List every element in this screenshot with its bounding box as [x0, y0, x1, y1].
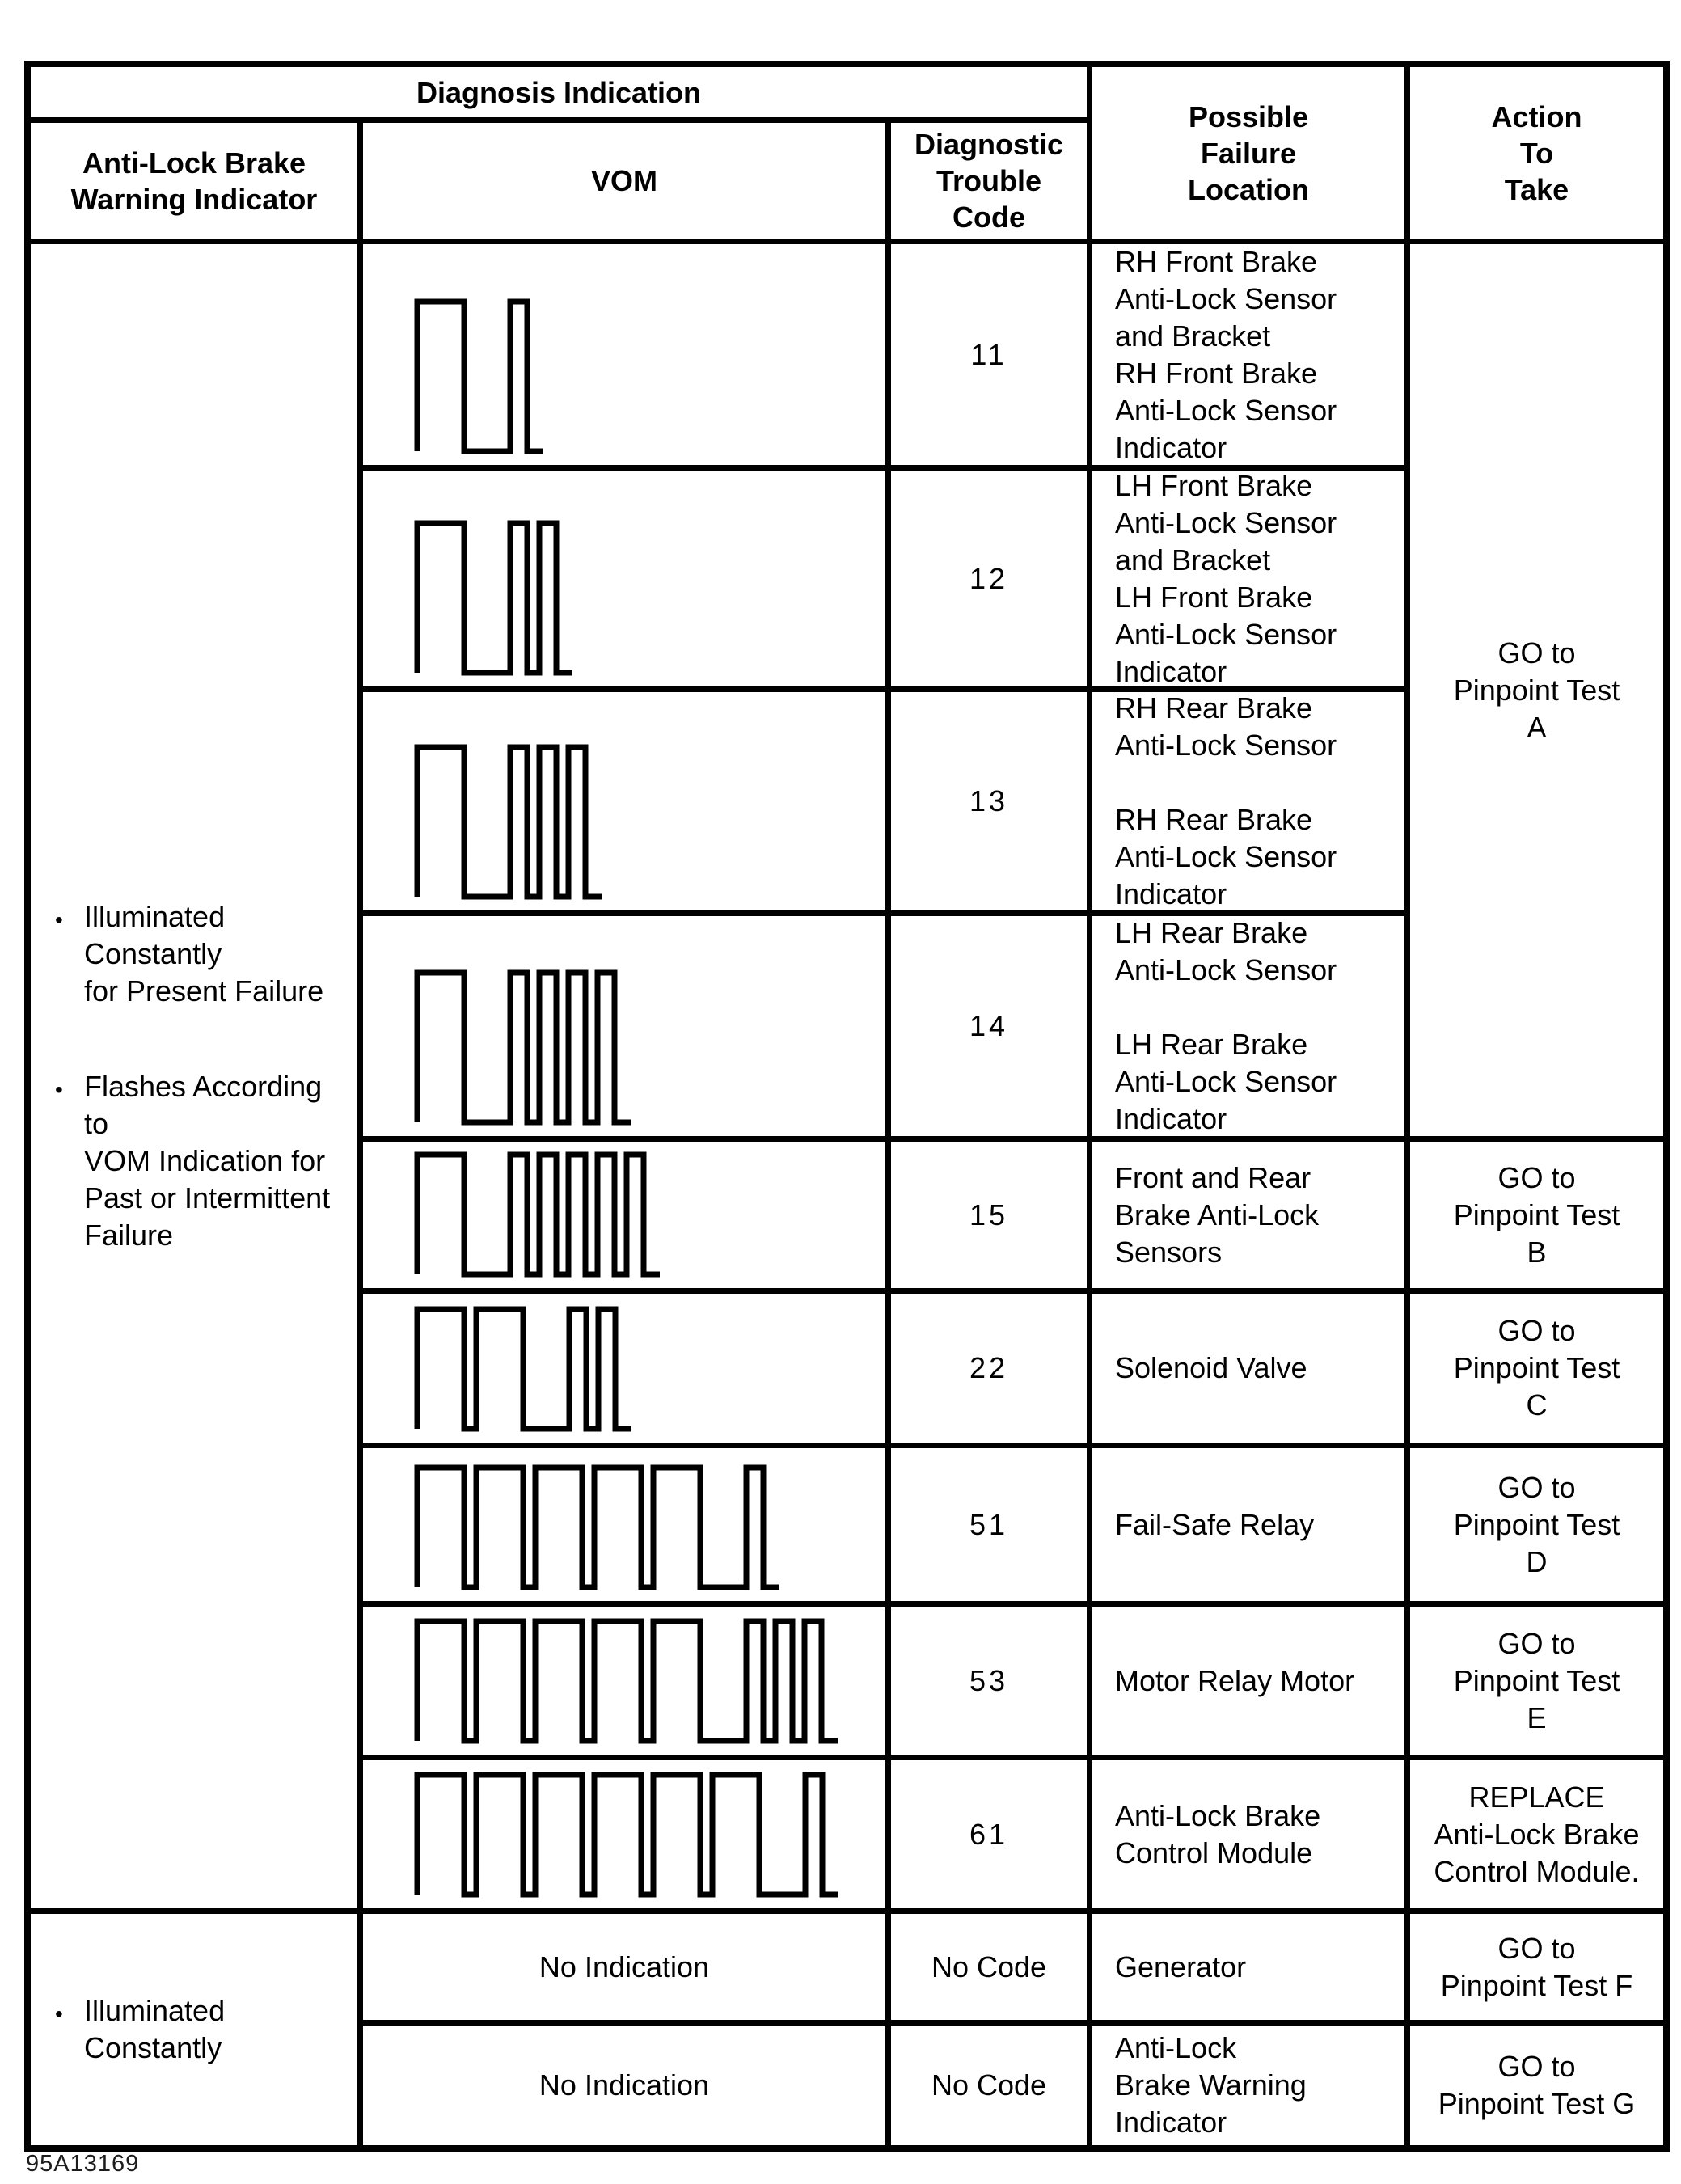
- failure-cell-warning-indicator: Anti-Lock Brake Warning Indicator: [1092, 2026, 1404, 2145]
- dtc-cell-11: 11: [891, 244, 1087, 465]
- vom-waveform-code-15: [413, 1151, 664, 1278]
- failure-cell-53: Motor Relay Motor: [1092, 1607, 1404, 1755]
- failure-cell-11: RH Front Brake Anti-Lock Sensor and Brac…: [1092, 244, 1404, 465]
- dtc-cell-12: 12: [891, 471, 1087, 686]
- dtc-cell-61: 61: [891, 1760, 1087, 1908]
- vom-cell-no-indication-g: No Indication: [363, 2026, 885, 2145]
- failure-cell-14: LH Rear Brake Anti-Lock Sensor LH Rear B…: [1092, 916, 1404, 1136]
- action-cell-pinpoint-f: GO to Pinpoint Test F: [1410, 1914, 1663, 2020]
- bullet-item-flashes-according: • Flashes According to VOM Indication fo…: [55, 1068, 344, 1254]
- action-cell-pinpoint-g: GO to Pinpoint Test G: [1410, 2026, 1663, 2145]
- vom-waveform-code-53: [413, 1617, 842, 1745]
- vom-cell-53: [363, 1607, 885, 1755]
- vom-waveform-code-11: [413, 298, 547, 455]
- failure-cell-generator: Generator: [1092, 1914, 1404, 2020]
- dtc-cell-51: 51: [891, 1448, 1087, 1601]
- action-cell-pinpoint-d: GO to Pinpoint Test D: [1410, 1448, 1663, 1601]
- anti-lock-brake-diagnosis-table: Diagnosis Indication Possible Failure Lo…: [24, 61, 1670, 2152]
- header-action-to-take: Action To Take: [1410, 67, 1663, 239]
- vom-waveform-code-51: [413, 1464, 783, 1591]
- header-possible-failure-location: Possible Failure Location: [1092, 67, 1404, 239]
- dtc-cell-15: 15: [891, 1142, 1087, 1288]
- vom-waveform-code-61: [413, 1771, 843, 1899]
- dtc-cell-13: 13: [891, 692, 1087, 910]
- action-cell-pinpoint-e: GO to Pinpoint Test E: [1410, 1607, 1663, 1755]
- vom-cell-61: [363, 1760, 885, 1908]
- header-diagnosis-indication: Diagnosis Indication: [31, 67, 1087, 117]
- bullet-icon: •: [55, 1992, 84, 2033]
- header-diagnostic-trouble-code: Diagnostic Trouble Code: [891, 123, 1087, 239]
- vom-waveform-code-22: [413, 1305, 636, 1433]
- bullet-item-illuminated: • Illuminated Constantly: [55, 1992, 344, 2067]
- vom-cell-14: [363, 916, 885, 1136]
- vom-waveform-code-12: [413, 519, 577, 677]
- failure-cell-61: Anti-Lock Brake Control Module: [1092, 1760, 1404, 1908]
- vom-cell-12: [363, 471, 885, 686]
- failure-cell-15: Front and Rear Brake Anti-Lock Sensors: [1092, 1142, 1404, 1288]
- dtc-cell-no-code-g: No Code: [891, 2026, 1087, 2145]
- indicator-cell-codes: • Illuminated Constantly for Present Fai…: [31, 244, 357, 1908]
- failure-cell-12: LH Front Brake Anti-Lock Sensor and Brac…: [1092, 471, 1404, 686]
- failure-cell-13: RH Rear Brake Anti-Lock Sensor RH Rear B…: [1092, 692, 1404, 910]
- bullet-text: Illuminated Constantly: [84, 1992, 225, 2067]
- action-cell-pinpoint-a: GO to Pinpoint Test A: [1410, 244, 1663, 1136]
- bullet-text: Flashes According to VOM Indication for …: [84, 1068, 344, 1254]
- scanned-service-manual-page: { "header": { "diagnosis_indication": "D…: [0, 0, 1681, 2184]
- vom-cell-no-indication-f: No Indication: [363, 1914, 885, 2020]
- action-cell-pinpoint-c: GO to Pinpoint Test C: [1410, 1294, 1663, 1443]
- action-cell-replace-module: REPLACE Anti-Lock Brake Control Module.: [1410, 1760, 1663, 1908]
- dtc-cell-53: 53: [891, 1607, 1087, 1755]
- vom-cell-11: [363, 244, 885, 465]
- vom-cell-13: [363, 692, 885, 910]
- vom-cell-22: [363, 1294, 885, 1443]
- header-vom: VOM: [363, 123, 885, 239]
- bullet-icon: •: [55, 898, 84, 939]
- action-cell-pinpoint-b: GO to Pinpoint Test B: [1410, 1142, 1663, 1288]
- vom-cell-51: [363, 1448, 885, 1601]
- header-warning-indicator: Anti-Lock Brake Warning Indicator: [31, 123, 357, 239]
- dtc-cell-no-code-f: No Code: [891, 1914, 1087, 2020]
- dtc-cell-14: 14: [891, 916, 1087, 1136]
- vom-waveform-code-13: [413, 743, 606, 901]
- failure-cell-51: Fail-Safe Relay: [1092, 1448, 1404, 1601]
- indicator-cell-no-code: • Illuminated Constantly: [31, 1914, 357, 2145]
- bullet-text: Illuminated Constantly for Present Failu…: [84, 898, 344, 1010]
- bullet-item-illuminated-constantly: • Illuminated Constantly for Present Fai…: [55, 898, 344, 1010]
- vom-cell-15: [363, 1142, 885, 1288]
- vom-waveform-code-14: [413, 969, 635, 1126]
- figure-number-caption: 95A13169: [26, 2151, 139, 2178]
- bullet-icon: •: [55, 1068, 84, 1109]
- failure-cell-22: Solenoid Valve: [1092, 1294, 1404, 1443]
- dtc-cell-22: 22: [891, 1294, 1087, 1443]
